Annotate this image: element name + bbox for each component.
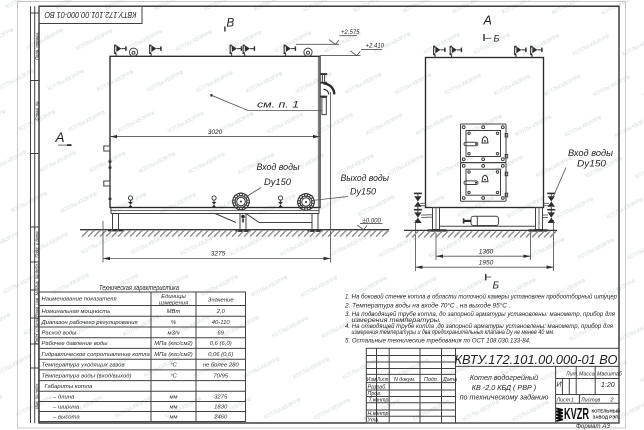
svg-text:Перв. примен.: Перв. примен. — [34, 32, 39, 60]
svg-text:1:20: 1:20 — [601, 382, 615, 389]
svg-text:Формат А3: Формат А3 — [576, 423, 610, 430]
svg-text:Б: Б — [494, 33, 500, 43]
svg-text:70/95: 70/95 — [213, 373, 228, 379]
svg-text:Справ. №: Справ. № — [34, 101, 39, 120]
svg-text:МВт: МВт — [167, 309, 181, 315]
svg-text:– высота: – высота — [52, 415, 80, 421]
svg-text:КВ -2,0 КБД ( РВР ): КВ -2,0 КБД ( РВР ) — [472, 383, 536, 392]
svg-text:Единицы: Единицы — [161, 294, 186, 300]
svg-text:Утв.: Утв. — [368, 417, 380, 423]
svg-text:0,6 (6,0): 0,6 (6,0) — [210, 341, 232, 347]
svg-text:мм: мм — [169, 415, 177, 421]
svg-text:В: В — [227, 17, 235, 29]
svg-text:Разраб.: Разраб. — [368, 385, 387, 391]
svg-text:не более 280: не более 280 — [203, 363, 240, 369]
svg-text:Изм: Изм — [367, 377, 377, 383]
svg-text:2: 2 — [610, 397, 614, 403]
svg-text:Дата: Дата — [442, 377, 457, 383]
svg-text:+2.410: +2.410 — [366, 44, 385, 50]
svg-text:Лист: Лист — [556, 397, 571, 403]
svg-text:мм: мм — [169, 405, 177, 411]
svg-text:Диапазон рабочего регулировани: Диапазон рабочего регулирования — [41, 320, 139, 326]
svg-text:1950: 1950 — [479, 260, 494, 267]
svg-text:измерения температуры и два пр: измерения температуры и два предохраните… — [352, 329, 555, 336]
svg-text:КВТУ.172.101.00.000-01 ВО: КВТУ.172.101.00.000-01 ВО — [455, 353, 618, 367]
svg-text:А: А — [55, 130, 65, 145]
svg-text:по техническому заданию: по техническому заданию — [460, 393, 549, 402]
svg-text:– ширина: – ширина — [52, 405, 80, 411]
svg-text:Значение: Значение — [208, 298, 235, 304]
svg-text:Подп.: Подп. — [424, 377, 438, 383]
svg-text:мм: мм — [169, 395, 177, 401]
svg-text:измерения: измерения — [159, 301, 189, 307]
svg-text:Масса: Масса — [579, 372, 595, 378]
svg-text:Гидравлическое сопротивление к: Гидравлическое сопротивление котла — [42, 352, 151, 358]
svg-text:°С: °С — [170, 373, 177, 379]
svg-text:%: % — [171, 320, 176, 326]
svg-text:Рабочее давление воды: Рабочее давление воды — [42, 341, 109, 347]
svg-text:Котел водогрейный: Котел водогрейный — [470, 373, 538, 382]
svg-text:Наименование показателя: Наименование показателя — [42, 297, 118, 303]
svg-text:Температура уходящих газов: Температура уходящих газов — [42, 363, 125, 369]
svg-text:МПа (кгс/см2): МПа (кгс/см2) — [154, 341, 193, 347]
svg-text:Выход воды: Выход воды — [341, 173, 390, 183]
svg-text:1830: 1830 — [214, 405, 228, 411]
svg-text:Dy150: Dy150 — [350, 187, 376, 197]
svg-text:Лит.: Лит. — [565, 372, 578, 378]
svg-text:КОТЕЛЬНЫЙ: КОТЕЛЬНЫЙ — [592, 409, 621, 414]
svg-text:°С: °С — [170, 363, 177, 369]
svg-text:0,06 (0,6): 0,06 (0,6) — [208, 352, 233, 358]
svg-text:KVZR: KVZR — [564, 406, 589, 423]
svg-text:Расход воды: Расход воды — [42, 331, 78, 337]
svg-text:ЗАВОД РЭП: ЗАВОД РЭП — [593, 415, 619, 420]
svg-text:Температура воды (вход/выход): Температура воды (вход/выход) — [42, 373, 132, 379]
svg-text:Инв. № дубл.: Инв. № дубл. — [34, 263, 39, 289]
svg-text:+2.575: +2.575 — [341, 30, 360, 36]
svg-text:А: А — [483, 14, 492, 28]
svg-text:5. Остальные технические треб: 5. Остальные технические требования по О… — [345, 337, 531, 344]
svg-text:40-110: 40-110 — [212, 320, 231, 326]
svg-text:Т.контр.: Т.контр. — [369, 398, 390, 404]
svg-text:Пров.: Пров. — [368, 391, 382, 397]
svg-text:– длина: – длина — [52, 395, 75, 401]
svg-text:Масштаб: Масштаб — [597, 372, 623, 378]
svg-text:Н.контр.: Н.контр. — [368, 411, 390, 417]
svg-text:69: 69 — [217, 331, 224, 337]
svg-text:Номинальная мощность: Номинальная мощность — [42, 309, 111, 315]
svg-text:3275: 3275 — [211, 251, 226, 258]
svg-text:Подп. и дата: Подп. и дата — [34, 231, 39, 258]
svg-text:Габариты котла: Габариты котла — [45, 384, 93, 390]
svg-text:МПа (кгс/см2): МПа (кгс/см2) — [154, 352, 193, 358]
svg-text:2460: 2460 — [213, 415, 228, 421]
svg-text:см. п. 1: см. п. 1 — [257, 100, 299, 111]
svg-text:Лист: Лист — [376, 377, 388, 383]
svg-text:1: 1 — [571, 397, 574, 403]
svg-text:1360: 1360 — [479, 249, 494, 256]
svg-text:Техническая характеристика: Техническая характеристика — [99, 285, 179, 292]
svg-text:N докум.: N докум. — [394, 377, 415, 383]
svg-text:Dy150: Dy150 — [264, 177, 291, 187]
svg-text:КВТУ.172.101.00.000-01 ВО: КВТУ.172.101.00.000-01 ВО — [45, 10, 137, 19]
svg-text:м3/ч: м3/ч — [168, 331, 180, 337]
svg-text:Dy150: Dy150 — [577, 159, 606, 169]
svg-text:1. На боковой стенке котла в: 1. На боковой стенке котла в области топ… — [345, 294, 618, 301]
svg-text:Б: Б — [493, 281, 500, 292]
svg-text:Вход воды: Вход воды — [568, 148, 613, 158]
svg-text:2. Температура воды на входе: 2. Температура воды на входе 70°С , на в… — [344, 302, 511, 309]
svg-text:3275: 3275 — [214, 395, 228, 401]
svg-text:Листов: Листов — [580, 397, 601, 403]
svg-text:2,0: 2,0 — [216, 309, 226, 315]
svg-text:Вход воды: Вход воды — [257, 162, 300, 172]
svg-text:3020: 3020 — [208, 129, 223, 136]
